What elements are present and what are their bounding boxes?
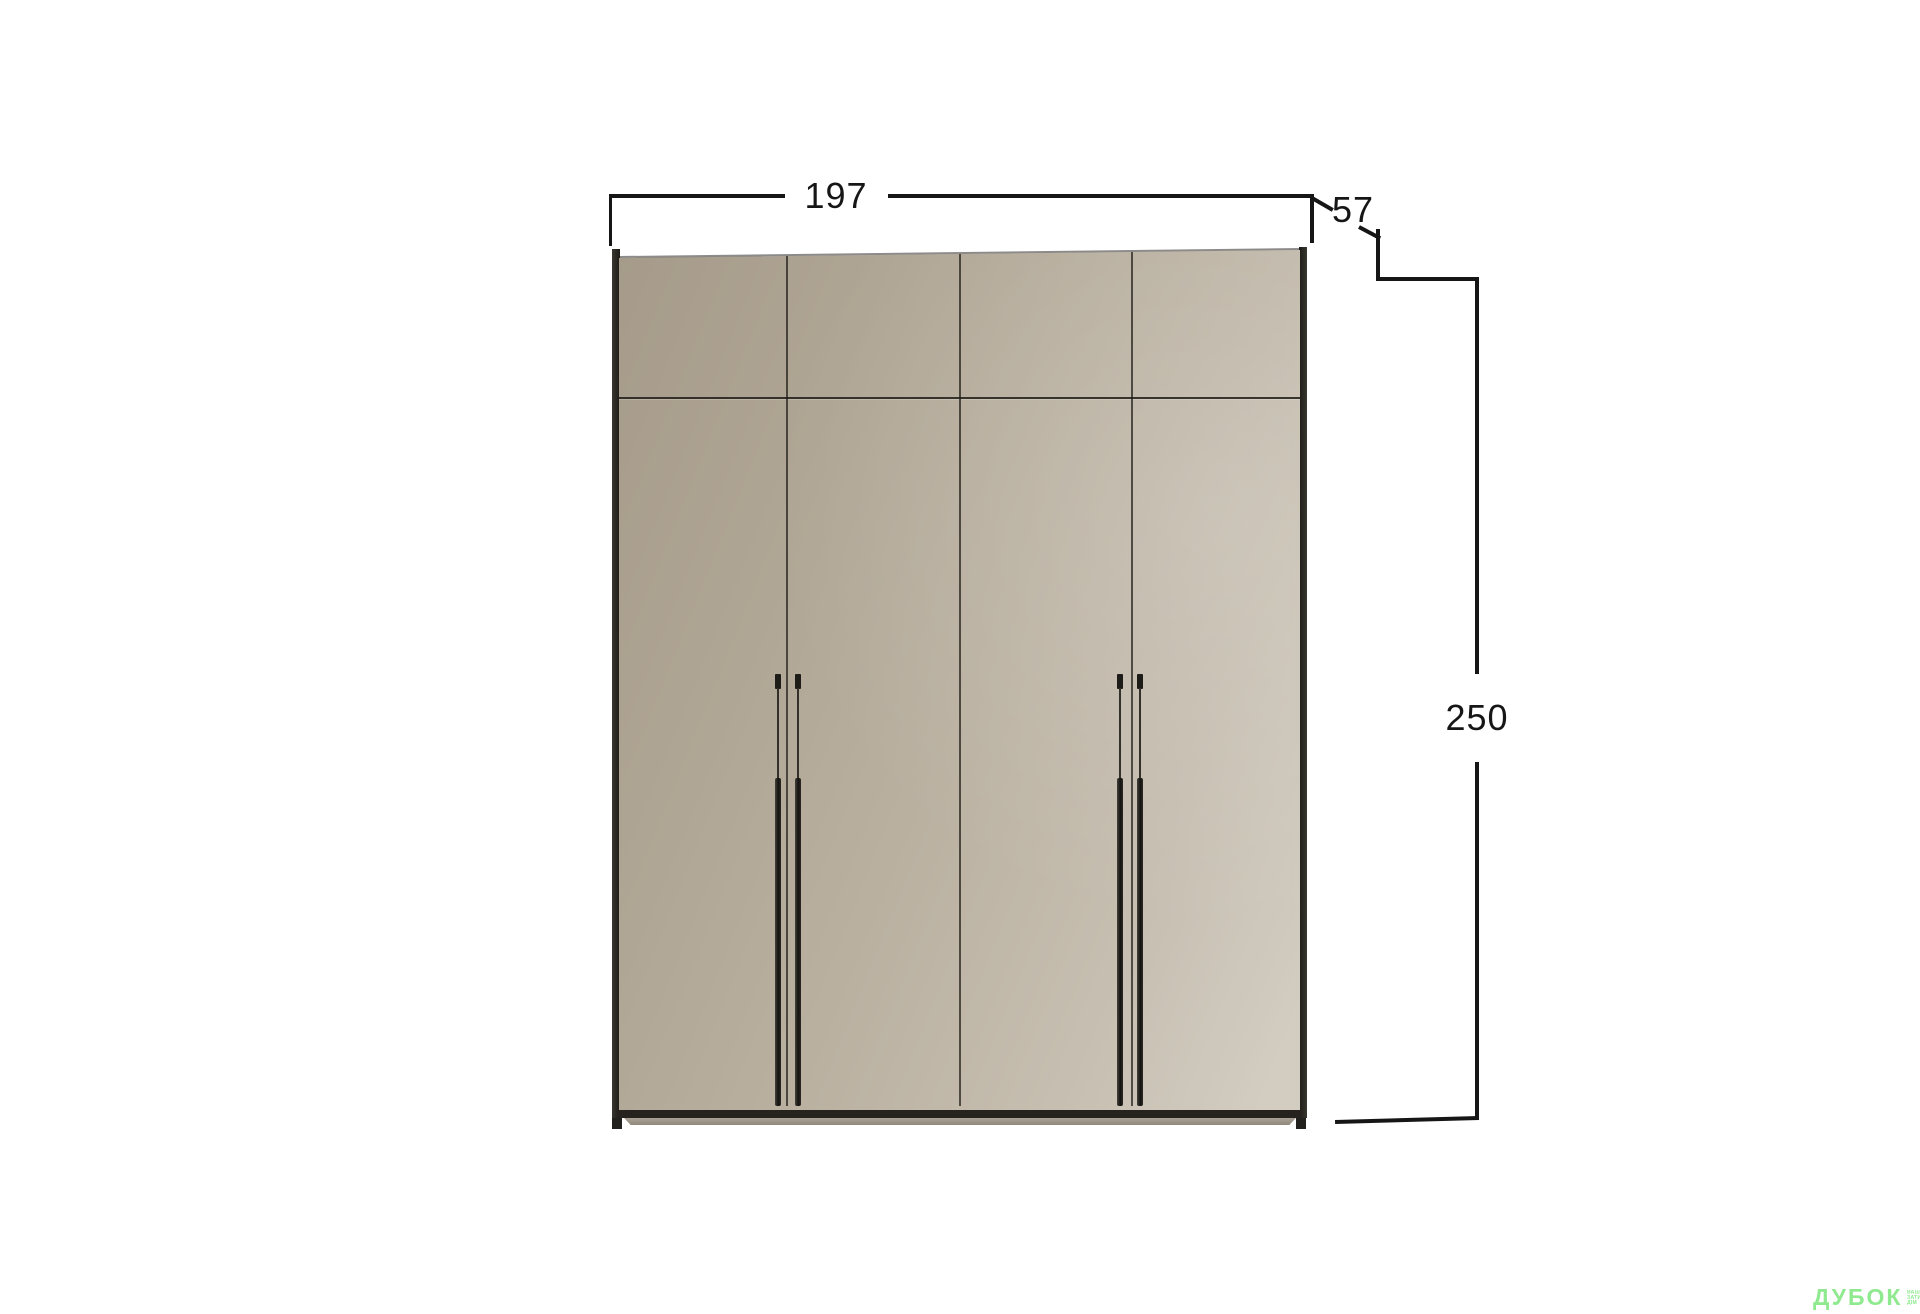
handle-cap (1117, 674, 1123, 689)
watermark: ДУБОК ВАШ ЗАТИШНИЙ ДІМ (1813, 1286, 1920, 1309)
wardrobe-right-edge (1299, 247, 1307, 1118)
handle-cap (795, 674, 801, 689)
watermark-tagline: ВАШ ЗАТИШНИЙ ДІМ (1907, 1290, 1920, 1305)
depth-dim-label: 57 (1322, 192, 1384, 228)
door-gap-1 (786, 250, 788, 1106)
height-dim-line-top (1475, 277, 1479, 674)
height-dim-line-bottom (1475, 762, 1479, 1120)
height-dim-bottom-tick (1335, 1116, 1479, 1124)
handle-stem (777, 688, 779, 780)
handle-stem (1119, 688, 1121, 780)
door-gap-2 (959, 250, 961, 1106)
handle-rod (795, 778, 801, 1106)
wardrobe-left-edge (612, 249, 620, 1118)
handle-rod (1137, 778, 1143, 1106)
watermark-tagline-line: ЗАТИШНИЙ (1907, 1295, 1920, 1300)
wardrobe-plinth-shadow (624, 1118, 1296, 1125)
watermark-tagline-line: ДІМ (1907, 1300, 1920, 1305)
wardrobe-foot-left (612, 1118, 622, 1129)
depth-dim-vertical-2 (1376, 229, 1380, 281)
wardrobe-front-face (619, 250, 1300, 1110)
handle-stem (797, 688, 799, 780)
handle-cap (1137, 674, 1143, 689)
furniture-dimension-diagram: 197 57 250 (0, 0, 1920, 1314)
wardrobe-base-strip (617, 1110, 1302, 1118)
width-dim-line-right (888, 194, 1314, 198)
height-dim-label: 250 (1415, 700, 1539, 736)
watermark-brand-logo: ДУБОК (1813, 1286, 1902, 1309)
handle-rod (775, 778, 781, 1106)
width-dim-line-left (609, 194, 785, 198)
width-dim-tick-left (609, 194, 612, 246)
watermark-tagline-line: ВАШ (1907, 1290, 1920, 1295)
width-dim-label: 197 (780, 178, 892, 214)
door-gap-3 (1131, 250, 1133, 1106)
handle-rod (1117, 778, 1123, 1106)
wardrobe-foot-right (1296, 1118, 1306, 1129)
handle-stem (1139, 688, 1141, 780)
handle-cap (775, 674, 781, 689)
depth-dim-horizontal-2 (1376, 277, 1479, 281)
